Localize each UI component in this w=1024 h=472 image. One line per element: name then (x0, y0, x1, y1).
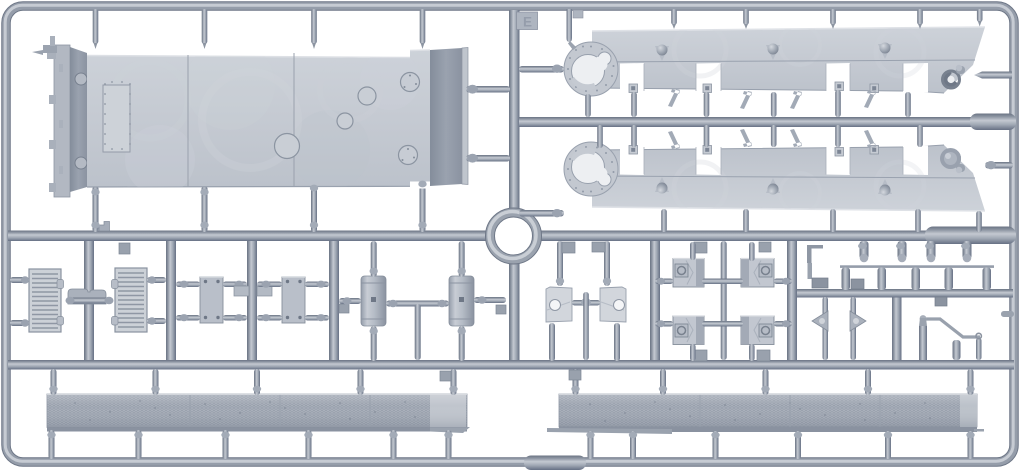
svg-text:E: E (523, 15, 532, 30)
